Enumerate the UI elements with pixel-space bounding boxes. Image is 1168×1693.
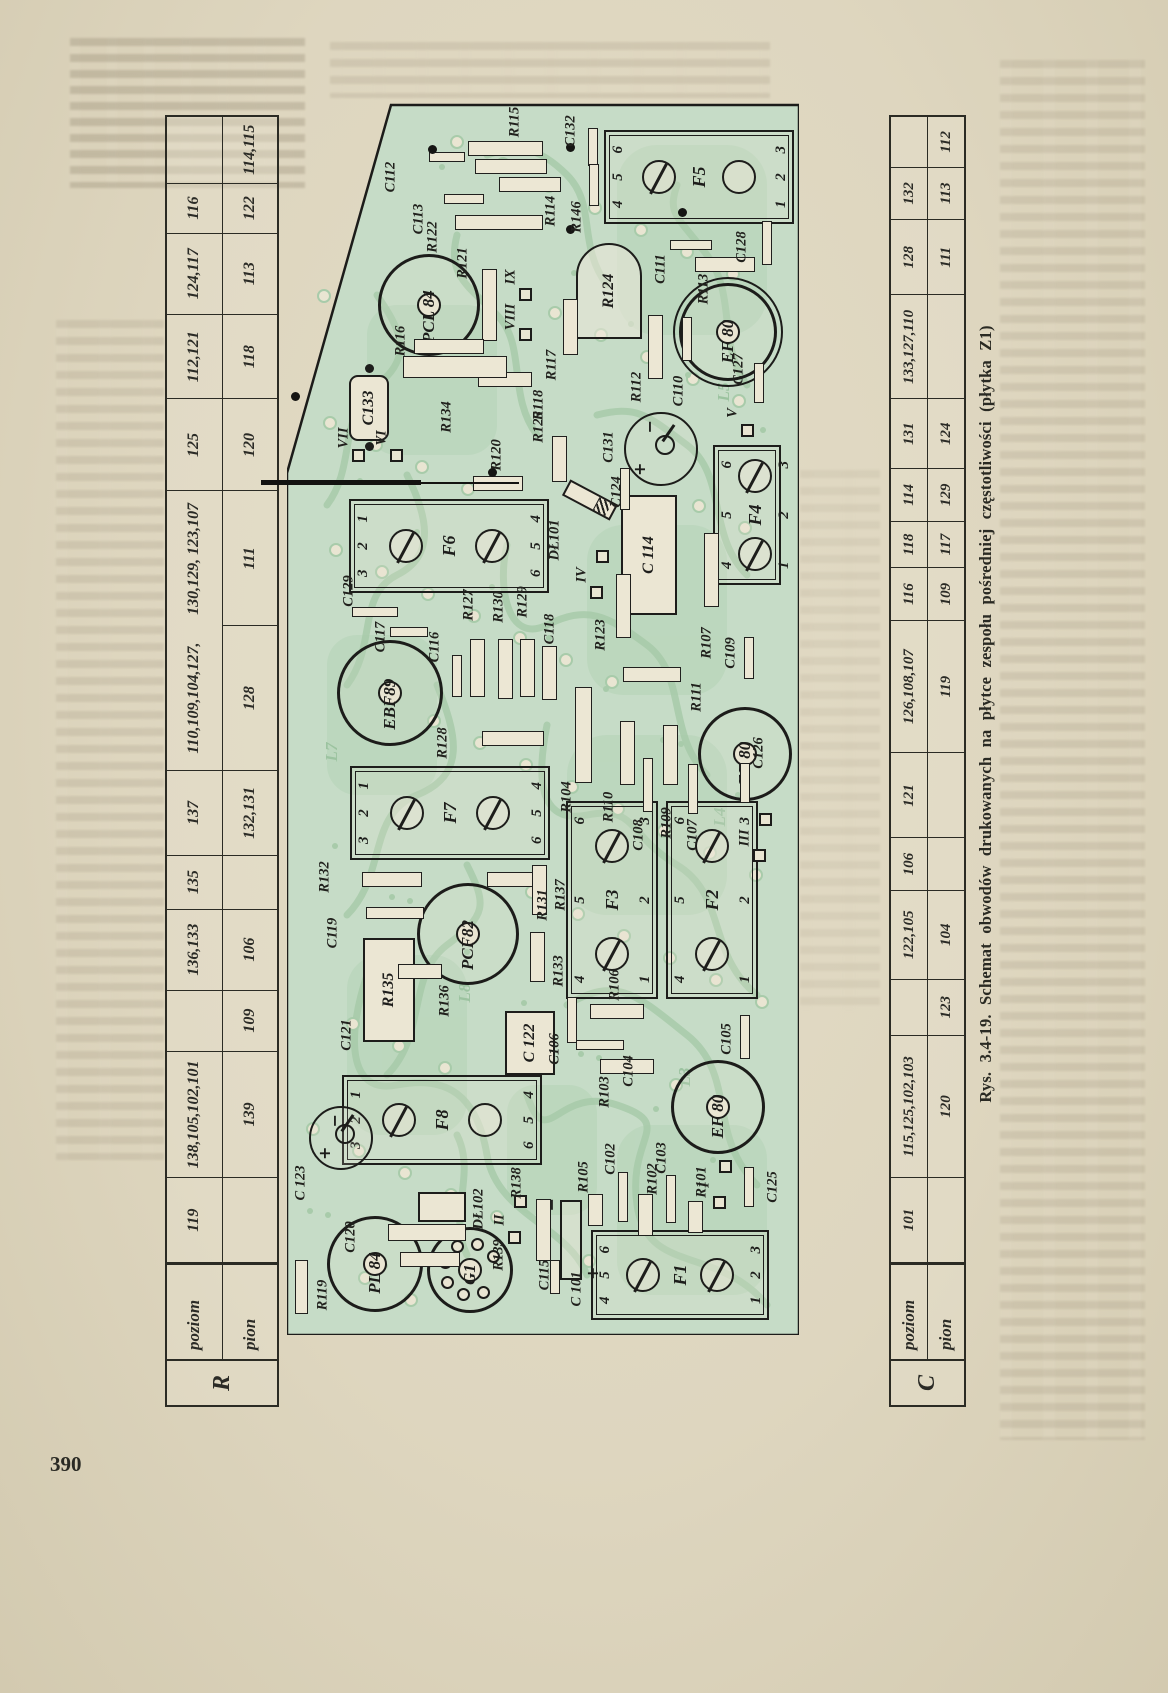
table-cell-pion: 112 bbox=[928, 117, 964, 167]
tube-label: EF 80 bbox=[708, 1095, 728, 1139]
table-column: 121 bbox=[891, 753, 964, 838]
component-R101 bbox=[688, 1201, 703, 1233]
screw-icon bbox=[476, 796, 510, 830]
bleed-text-block bbox=[330, 42, 770, 98]
screw-icon bbox=[695, 937, 729, 971]
socket-label: F3 bbox=[602, 890, 623, 911]
table-column: 131124 bbox=[891, 399, 964, 469]
pcb-label-C118: C118 bbox=[542, 614, 559, 645]
pcb-label-R127: R127 bbox=[461, 589, 478, 620]
table-cell-pion bbox=[223, 856, 278, 909]
socket-pin-numbers: 321 bbox=[352, 768, 375, 858]
table-cell-poziom: 128 bbox=[891, 220, 928, 294]
table-column: 138,105,102,101139 bbox=[167, 1052, 277, 1179]
pcb-label-R111: R111 bbox=[689, 682, 706, 712]
table-column: 124,117113 bbox=[167, 234, 277, 315]
pcb-label-III: III bbox=[737, 830, 754, 847]
table-cell-pion: 111 bbox=[928, 220, 964, 294]
table-cell-pion bbox=[928, 838, 964, 890]
table-cell-poziom bbox=[891, 117, 928, 167]
component-C125 bbox=[744, 1167, 754, 1207]
table-column: 119 bbox=[167, 1178, 277, 1263]
socket-F5: 456F5123 bbox=[604, 130, 794, 224]
table-cell-pion: 109 bbox=[223, 991, 278, 1051]
component-R124: R124 bbox=[576, 243, 642, 339]
screw-icon bbox=[595, 937, 629, 971]
test-point-pad bbox=[352, 449, 365, 462]
component-R117 bbox=[563, 299, 578, 355]
test-point-pad bbox=[508, 1231, 521, 1244]
pcb-label-C103: C103 bbox=[654, 1142, 671, 1173]
pcb-label-R129: R129 bbox=[515, 586, 532, 617]
table-column: 116109 bbox=[891, 568, 964, 621]
socket-F4: 456F4123 bbox=[713, 445, 781, 585]
socket-pin-numbers: 123 bbox=[744, 1232, 767, 1318]
capacitor-C124: +− bbox=[624, 412, 698, 486]
pcb-label-C105: C105 bbox=[719, 1023, 736, 1054]
pcb-label-V: V bbox=[725, 408, 742, 418]
tube-pin bbox=[477, 1286, 490, 1299]
figure-caption: Rys. 3.4-19. Schemat obwodów drukowanych… bbox=[964, 238, 1008, 1190]
tube-label: PL 84 bbox=[365, 1252, 385, 1293]
pcb-label-R117: R117 bbox=[544, 350, 561, 381]
pcb-label-R134: R134 bbox=[439, 401, 456, 432]
component-R128 bbox=[482, 732, 544, 747]
socket-pin-numbers: 123 bbox=[772, 447, 795, 583]
pcb-label-R146: R146 bbox=[569, 201, 586, 232]
table-column: 112 bbox=[891, 117, 964, 168]
pcb-label-VI: VI bbox=[374, 430, 391, 445]
pcb-label-R133: R133 bbox=[551, 955, 568, 986]
pcb-label-R121: R121 bbox=[455, 247, 472, 278]
table-cell-pion: 123 bbox=[928, 980, 964, 1035]
component-R136 bbox=[398, 965, 442, 980]
row-header-pion: pion bbox=[223, 1265, 278, 1359]
table-corner-label: R bbox=[167, 1359, 277, 1405]
test-point-pad bbox=[713, 1196, 726, 1209]
coil-ghost-label-L8: L8 bbox=[455, 984, 475, 1003]
table-cell-poziom: 116 bbox=[891, 568, 928, 620]
table-cell-poziom: 138,105,102,101 bbox=[167, 1052, 223, 1178]
bleed-text-block bbox=[56, 320, 164, 1160]
pcb-label-R132: R132 bbox=[317, 861, 334, 892]
table-cell-poziom: 136,133 bbox=[167, 910, 223, 990]
c-table: Cpoziompion101115,125,102,103120123122,1… bbox=[889, 115, 966, 1407]
pcb-label-R122: R122 bbox=[425, 221, 442, 252]
table-column: 110,109,104,127,128 bbox=[167, 626, 277, 771]
component-R134 bbox=[403, 356, 507, 378]
component-location-table: Cpoziompion101115,125,102,103120123122,1… bbox=[889, 115, 966, 1407]
pcb-label-R123: R123 bbox=[593, 619, 610, 650]
pcb-label-R112: R112 bbox=[629, 372, 646, 403]
table-cell-poziom: 110,109,104,127, bbox=[167, 626, 223, 770]
table-cell-pion: 118 bbox=[223, 315, 278, 399]
component-C103 bbox=[666, 1175, 676, 1223]
component-DL102 bbox=[418, 1192, 466, 1222]
component-C117 bbox=[390, 627, 428, 637]
table-cell-poziom: 115,125,102,103 bbox=[891, 1036, 928, 1177]
screw-icon bbox=[626, 1258, 660, 1292]
table-column: 101 bbox=[891, 1178, 964, 1263]
table-column: 133,127,110 bbox=[891, 295, 964, 399]
table-cell-pion: 119 bbox=[928, 621, 964, 753]
table-cell-pion: 139 bbox=[223, 1052, 278, 1178]
pcb-board: 456F5123321F6654321F7654321F8654456F1123… bbox=[287, 103, 799, 1335]
component-C102 bbox=[618, 1172, 628, 1222]
socket-pin-numbers: 123 bbox=[769, 132, 792, 222]
table-column: 118117 bbox=[891, 522, 964, 569]
bleed-text-block bbox=[800, 470, 880, 1010]
table-cell-pion bbox=[928, 753, 964, 837]
socket-F6: 321F6654 bbox=[349, 499, 549, 593]
pcb-label-II: II bbox=[492, 1214, 509, 1225]
table-column: 136,133106 bbox=[167, 910, 277, 991]
table-cell-pion bbox=[928, 1178, 964, 1262]
pcb-label-R139: R139 bbox=[491, 1239, 508, 1270]
socket-label: F7 bbox=[440, 803, 461, 824]
pcb-label-IV: IV bbox=[574, 567, 591, 582]
solder-dot bbox=[365, 364, 374, 373]
table-cell-poziom: 131 bbox=[891, 399, 928, 468]
pcb-label-DŁ101: DŁ101 bbox=[547, 519, 564, 560]
tube-label: PCL 84 bbox=[419, 290, 439, 343]
socket-pin-numbers: 654 bbox=[517, 1077, 540, 1163]
component-C108 bbox=[643, 758, 653, 812]
table-column: 112,121118 bbox=[167, 315, 277, 400]
component-C105 bbox=[740, 1015, 750, 1059]
component-C107 bbox=[688, 764, 698, 814]
table-cell-pion: 104 bbox=[928, 891, 964, 979]
pcb-label-R103: R103 bbox=[597, 1076, 614, 1107]
table-cell-pion bbox=[223, 1178, 278, 1262]
test-point-pad bbox=[590, 586, 603, 599]
table-cell-poziom bbox=[891, 980, 928, 1035]
table-column: 137132,131 bbox=[167, 771, 277, 856]
pcb-label-R104: R104 bbox=[559, 781, 576, 812]
table-cell-poziom bbox=[167, 991, 223, 1051]
test-point-pad bbox=[519, 288, 532, 301]
table-cell-pion: 106 bbox=[223, 910, 278, 990]
component-R119 bbox=[295, 1260, 308, 1314]
screw-icon bbox=[738, 537, 772, 571]
component-C128 bbox=[762, 221, 772, 265]
component-R123 bbox=[616, 574, 631, 638]
table-cell-pion: 122 bbox=[223, 184, 278, 233]
table-column: 114129 bbox=[891, 469, 964, 522]
pcb-label-C119: C119 bbox=[325, 918, 342, 949]
table-column: 123 bbox=[891, 980, 964, 1036]
component-R112 bbox=[648, 315, 663, 379]
table-column: 125120 bbox=[167, 399, 277, 491]
pcb-label-C115: C115 bbox=[537, 1260, 554, 1291]
pcb-label-R138: R138 bbox=[509, 1167, 526, 1198]
table-cell-poziom: 133,127,110 bbox=[891, 295, 928, 398]
pcb-label-IX: IX bbox=[503, 269, 520, 284]
table-cell-poziom: 125 bbox=[167, 399, 223, 490]
component-C104 bbox=[576, 1040, 624, 1050]
pcb-label-R130: R130 bbox=[491, 591, 508, 622]
pcb-label-R109: R109 bbox=[659, 807, 676, 838]
socket-label: F1 bbox=[670, 1265, 691, 1286]
tube-pin bbox=[457, 1288, 470, 1301]
pcb-label-C128: C128 bbox=[734, 231, 751, 262]
component-R138 bbox=[536, 1199, 551, 1261]
test-point-pad bbox=[519, 328, 532, 341]
pcb-label-C109: C109 bbox=[723, 637, 740, 668]
component-C106 bbox=[567, 997, 577, 1043]
table-column: 114,115 bbox=[167, 117, 277, 184]
socket-label: F4 bbox=[745, 505, 766, 526]
table-cell-poziom: 121 bbox=[891, 753, 928, 837]
socket-pin-numbers: 654 bbox=[525, 768, 548, 858]
test-point-pad bbox=[390, 449, 403, 462]
pcb-label-C112: C112 bbox=[383, 162, 400, 193]
scanned-book-page: Rpoziompion119138,105,102,101139109136,1… bbox=[0, 0, 1168, 1693]
table-row-headers: poziompion bbox=[167, 1263, 277, 1359]
screw-icon bbox=[700, 1258, 734, 1292]
table-cell-pion bbox=[928, 295, 964, 398]
screw-icon bbox=[390, 796, 424, 830]
table-cell-poziom: 124,117 bbox=[167, 234, 223, 314]
component-R133 bbox=[530, 932, 545, 982]
row-header-pion: pion bbox=[928, 1265, 964, 1359]
pcb-label-C102: C102 bbox=[603, 1143, 620, 1174]
table-cell-pion: 129 bbox=[928, 469, 964, 521]
pcb-label-C110: C110 bbox=[671, 376, 688, 407]
pcb-label-R107: R107 bbox=[699, 627, 716, 658]
pcb-label-C131: C131 bbox=[601, 431, 618, 462]
test-point-pad bbox=[753, 849, 766, 862]
table-cell-poziom: 122,105 bbox=[891, 891, 928, 979]
table-column: 115,125,102,103120 bbox=[891, 1036, 964, 1178]
pcb-label-C120: C120 bbox=[343, 1221, 360, 1252]
capacitor-C115: +− bbox=[560, 1200, 582, 1280]
component-R114 bbox=[499, 178, 561, 193]
screw-icon bbox=[389, 529, 423, 563]
component-R122 bbox=[455, 216, 543, 231]
table-cell-pion: 132,131 bbox=[223, 771, 278, 855]
table-column: 109 bbox=[167, 991, 277, 1052]
tube-pin bbox=[441, 1276, 454, 1289]
component-C126 bbox=[740, 763, 750, 803]
pcb-label-R106: R106 bbox=[607, 969, 624, 1000]
table-cell-poziom: 114 bbox=[891, 469, 928, 521]
component-R111 bbox=[623, 668, 681, 683]
pcb-label-VIII: VIII bbox=[503, 304, 520, 331]
table-cell-poziom: 116 bbox=[167, 184, 223, 233]
socket-F7: 321F7654 bbox=[350, 766, 550, 860]
pcb-label-R137: R137 bbox=[553, 879, 570, 910]
table-cell-pion: 128 bbox=[223, 626, 278, 770]
table-cell-pion: 120 bbox=[928, 1036, 964, 1177]
component-C109 bbox=[744, 637, 754, 679]
pcb-label-R128: R128 bbox=[435, 727, 452, 758]
table-cell-poziom: 137 bbox=[167, 771, 223, 855]
pcb-label-R105: R105 bbox=[576, 1161, 593, 1192]
pcb-label-R120: R120 bbox=[489, 439, 506, 470]
table-cell-poziom bbox=[167, 117, 223, 183]
screw-icon bbox=[738, 459, 772, 493]
component-R121 bbox=[482, 269, 497, 341]
table-cell-pion: 117 bbox=[928, 522, 964, 568]
screw-icon bbox=[468, 1103, 502, 1137]
table-cell-poziom: 118 bbox=[891, 522, 928, 568]
pcb-label-R116: R116 bbox=[393, 326, 410, 357]
bleed-text-block bbox=[1000, 60, 1145, 1440]
component-R130 bbox=[498, 639, 513, 699]
test-point-pad bbox=[719, 1160, 732, 1173]
pcb-label-C132: C132 bbox=[563, 115, 580, 146]
socket-pin-numbers: 654 bbox=[524, 501, 547, 591]
table-column: 122,105104 bbox=[891, 891, 964, 980]
component-C129 bbox=[352, 607, 398, 617]
pcb-label-R131: R131 bbox=[535, 889, 552, 920]
table-column: 106 bbox=[891, 838, 964, 891]
component-R115 bbox=[468, 142, 543, 157]
pcb-diagram: 456F5123321F6654321F7654321F8654456F1123… bbox=[287, 103, 799, 1335]
pcb-label-C123: C 123 bbox=[293, 1165, 310, 1200]
screw-icon bbox=[722, 160, 756, 194]
pcb-label-C129: C129 bbox=[341, 575, 358, 606]
component-C120 bbox=[388, 1225, 466, 1242]
caption-text: Rys. 3.4-19. Schemat obwodów drukowanych… bbox=[964, 238, 1008, 1190]
pcb-label-C121: C121 bbox=[339, 1019, 356, 1050]
pcb-label-VII: VII bbox=[336, 428, 353, 449]
component-R107 bbox=[704, 533, 719, 607]
pcb-label-R110: R110 bbox=[601, 792, 618, 823]
component-R127 bbox=[470, 639, 485, 697]
pcb-label-R114: R114 bbox=[543, 196, 560, 227]
pcb-label-C124: C124 bbox=[609, 476, 626, 507]
pointer-line bbox=[417, 482, 519, 484]
table-cell-poziom: 130,129, 123,107 bbox=[167, 492, 223, 627]
r-table: Rpoziompion119138,105,102,101139109136,1… bbox=[165, 115, 279, 1407]
table-cell-poziom: 119 bbox=[167, 1178, 223, 1262]
component-C127 bbox=[754, 363, 764, 403]
pcb-label-C125: C125 bbox=[765, 1171, 782, 1202]
table-column: 128111 bbox=[891, 220, 964, 295]
component-R139 bbox=[400, 1253, 460, 1268]
socket-label: F2 bbox=[702, 890, 723, 911]
table-column: 130,129, 123,107111 bbox=[167, 492, 277, 627]
pcb-label-C108: C108 bbox=[631, 819, 648, 850]
table-row-headers: poziompion bbox=[891, 1263, 964, 1359]
socket-F8: 321F8654 bbox=[342, 1075, 542, 1165]
component-C110 bbox=[682, 317, 692, 361]
tube-label: EBF89 bbox=[380, 679, 400, 730]
pcb-label-R136: R136 bbox=[437, 985, 454, 1016]
component-R146 bbox=[589, 164, 599, 206]
table-column: 126,108,107119 bbox=[891, 621, 964, 754]
page-number: 390 bbox=[50, 1452, 82, 1477]
component-R125 bbox=[552, 436, 567, 482]
component-R110 bbox=[620, 721, 635, 785]
component-C111 bbox=[670, 240, 712, 250]
table-cell-poziom: 101 bbox=[891, 1178, 928, 1262]
component-R129 bbox=[520, 639, 535, 697]
pointer-line bbox=[261, 481, 421, 486]
pcb-bar bbox=[475, 160, 547, 175]
screw-icon bbox=[475, 529, 509, 563]
component-C119 bbox=[366, 907, 424, 919]
component-C118 bbox=[542, 646, 557, 700]
row-header-poziom: poziom bbox=[891, 1265, 928, 1359]
pcb-label-R113: R113 bbox=[696, 274, 713, 305]
table-column: 116122 bbox=[167, 184, 277, 234]
pcb-label-C111: C111 bbox=[653, 254, 670, 284]
pcb-label-R125: R125 bbox=[531, 411, 548, 442]
component-C113 bbox=[444, 194, 484, 204]
tube-label: G1 bbox=[460, 1264, 480, 1285]
tube-label: PCF82 bbox=[458, 920, 478, 970]
coil-ghost-label-L7: L7 bbox=[322, 743, 342, 762]
component-R105 bbox=[588, 1194, 603, 1226]
socket-label: F5 bbox=[689, 167, 710, 188]
table-cell-pion: 113 bbox=[223, 234, 278, 314]
test-point-pad bbox=[741, 424, 754, 437]
tube-pin bbox=[471, 1238, 484, 1251]
table-cell-poziom: 106 bbox=[891, 838, 928, 890]
component-R132 bbox=[362, 873, 422, 888]
pcb-label-R115: R115 bbox=[507, 107, 524, 138]
pcb-label-DŁ102: DŁ102 bbox=[471, 1188, 488, 1229]
socket-F1: 456F1123 bbox=[591, 1230, 769, 1320]
table-cell-poziom: 132 bbox=[891, 168, 928, 220]
component-R109 bbox=[663, 725, 678, 785]
table-cell-pion: 109 bbox=[928, 568, 964, 620]
test-point-pad bbox=[759, 813, 772, 826]
pcb-label-C117: C117 bbox=[373, 622, 390, 653]
table-cell-pion: 113 bbox=[928, 168, 964, 220]
table-column: 132113 bbox=[891, 168, 964, 221]
table-cell-poziom: 135 bbox=[167, 856, 223, 909]
pcb-label-C116: C116 bbox=[427, 632, 444, 663]
component-C132 bbox=[588, 128, 598, 166]
socket-label: F6 bbox=[439, 536, 460, 557]
table-cell-pion: 111 bbox=[223, 492, 278, 627]
pcb-label-R119: R119 bbox=[315, 1280, 332, 1311]
socket-pin-numbers: 456 bbox=[568, 803, 591, 997]
component-C121: R135 bbox=[363, 938, 415, 1042]
component-R120 bbox=[473, 477, 523, 492]
test-point-pad bbox=[596, 550, 609, 563]
table-corner-label: C bbox=[891, 1359, 964, 1405]
socket-label: F8 bbox=[432, 1110, 453, 1131]
component-R102 bbox=[638, 1194, 653, 1236]
pcb-label-I: I bbox=[697, 1182, 714, 1188]
pcb-label-C127: C127 bbox=[731, 353, 748, 384]
table-cell-poziom: 126,108,107 bbox=[891, 621, 928, 753]
pcb-label-C126: C126 bbox=[751, 737, 768, 768]
tube-EF80c: EF 80 bbox=[671, 1060, 765, 1154]
pcb-label-C106: C106 bbox=[547, 1033, 564, 1064]
table-column: 135 bbox=[167, 856, 277, 910]
screw-icon bbox=[382, 1103, 416, 1137]
table-cell-pion: 114,115 bbox=[223, 117, 278, 183]
component-R106 bbox=[590, 1005, 644, 1020]
table-cell-pion: 120 bbox=[223, 399, 278, 490]
component-location-table: Rpoziompion119138,105,102,101139109136,1… bbox=[165, 115, 279, 1407]
pcb-label-C104: C104 bbox=[621, 1055, 638, 1086]
screw-icon bbox=[642, 160, 676, 194]
component-R104 bbox=[575, 687, 592, 783]
component-C116 bbox=[452, 655, 462, 697]
row-header-poziom: poziom bbox=[167, 1265, 223, 1359]
pcb-label-C107: C107 bbox=[685, 819, 702, 850]
socket-pin-numbers: 456 bbox=[606, 132, 629, 222]
table-cell-poziom: 112,121 bbox=[167, 315, 223, 399]
table-cell-pion: 124 bbox=[928, 399, 964, 468]
